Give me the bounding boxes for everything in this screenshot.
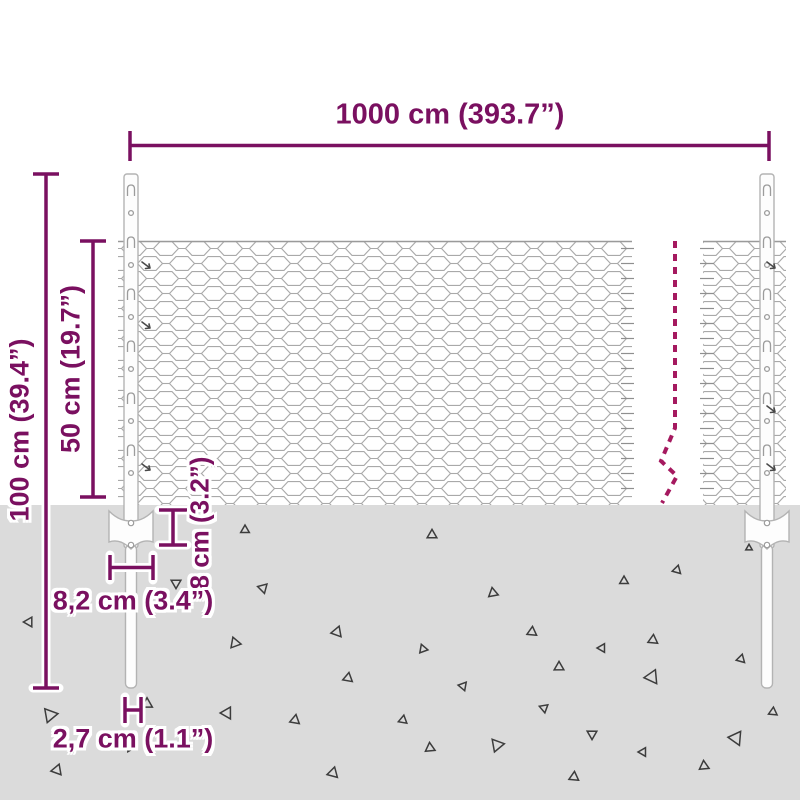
post-hole <box>129 419 134 424</box>
clamp-hole <box>128 542 133 547</box>
post-hole <box>765 367 770 372</box>
label-total-width: 1000 cm (393.7”) <box>336 99 565 132</box>
clamp-hole <box>764 520 769 525</box>
post-hole <box>765 211 770 216</box>
clamp-hole <box>764 542 769 547</box>
mesh-break-line <box>661 241 677 503</box>
label-anchor-width: 8,2 cm (3.4”) <box>53 586 214 617</box>
post-hole <box>765 471 770 476</box>
label-post-height: 100 cm (39.4”) <box>5 338 36 521</box>
post-hole <box>129 367 134 372</box>
label-post-diameter: 2,7 cm (1.1”) <box>53 724 214 755</box>
clamp-hole <box>128 520 133 525</box>
ground <box>0 505 800 800</box>
post-hole <box>129 211 134 216</box>
post-hole <box>765 315 770 320</box>
label-anchor-depth: 8 cm (3.2”) <box>185 457 216 590</box>
fence-dimension-diagram: 1000 cm (393.7”) 100 cm (39.4”) 50 cm (1… <box>0 0 800 800</box>
dimension-total-width <box>130 131 769 161</box>
right-stake <box>762 545 773 688</box>
label-mesh-height: 50 cm (19.7”) <box>56 285 87 453</box>
left-post <box>124 174 138 548</box>
post-hole <box>129 471 134 476</box>
post-hole <box>129 263 134 268</box>
post-hole <box>129 315 134 320</box>
post-hole <box>765 419 770 424</box>
right-post <box>760 174 774 548</box>
